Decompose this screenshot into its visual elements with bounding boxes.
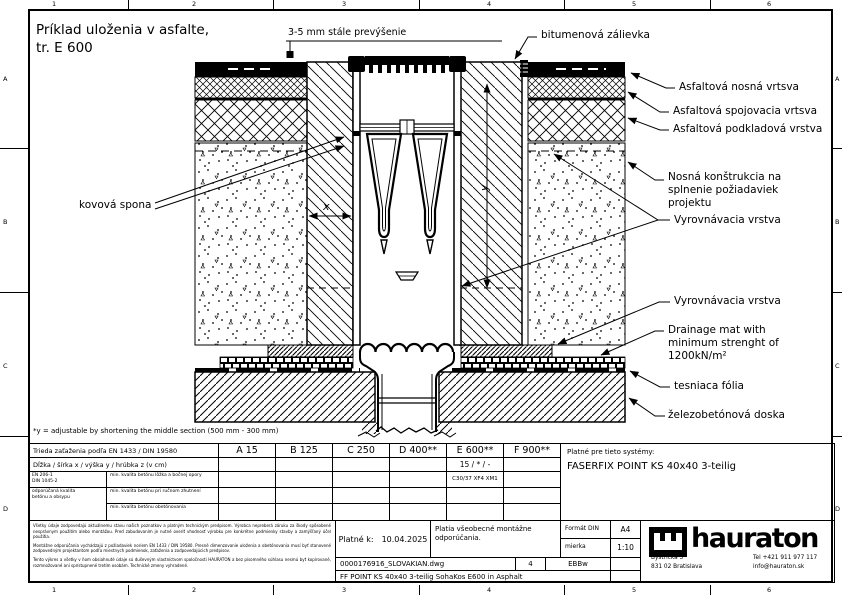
dims-e600: 15 / * / - <box>446 457 504 472</box>
scale-label: mierka <box>560 538 611 558</box>
drawing-file: 0000176916_SLOVAKIAN.dwg <box>335 557 516 571</box>
row-class-label: Trieda zaťaženia podľa EN 1433 / DIN 195… <box>28 443 219 458</box>
cc-1-c <box>332 471 390 488</box>
label-asphalt-binder: Asfaltová spojovacia vrtsva <box>673 105 817 118</box>
dimension-y-label: y <box>478 184 491 191</box>
general-note-cell: Platia všeobecné montážne odporúčania. <box>430 520 561 558</box>
label-metal-clamp: kovová spona <box>79 199 151 212</box>
cc-1-a <box>218 471 276 488</box>
disclaimer-2: Montážne odporúčania vychádzajú z požiad… <box>33 543 331 554</box>
class-e600: E 600** <box>446 443 504 458</box>
page-title: Príklad uloženia v asfalte, tr. E 600 <box>36 22 209 57</box>
label-sealing-foil: tesniaca fólia <box>674 380 744 393</box>
class-f900: F 900** <box>503 443 561 458</box>
author-code: EBBw <box>545 557 611 571</box>
asphalt-layers-left <box>195 62 307 345</box>
label-asphalt-base: Asfaltová podkladová vrstva <box>673 123 822 136</box>
cc-3-d <box>389 503 447 521</box>
label-bearing-structure: Nosná konštrukcia na splnenie požiadavie… <box>668 171 781 209</box>
label-drainage-mat: Drainage mat with minimum strenght of 12… <box>668 324 779 362</box>
brand-block: hauraton Bystrická 3 831 02 Bratislava T… <box>640 520 835 583</box>
systems-block: Platné pre tieto systémy: FASERFIX POINT… <box>560 443 835 521</box>
cc-2-d <box>389 487 447 504</box>
scale-value: 1:10 <box>610 538 641 558</box>
cc-3-f <box>503 503 561 521</box>
disclaimer-3: Tento výkres a všetky v ňom obsiahnuté ú… <box>33 557 331 568</box>
class-a15: A 15 <box>218 443 276 458</box>
empty-cell-1 <box>610 557 641 571</box>
disclaimer-block: Všetky údaje zodpovedajú aktuálnemu stav… <box>28 520 336 583</box>
cc-3-b <box>275 503 333 521</box>
drawing-name: FF POINT KS 40x40 3-teilig SohaKos E600 … <box>335 570 611 583</box>
systems-value: FASERFIX POINT KS 40x40 3-teilig <box>567 461 834 472</box>
class-c250: C 250 <box>332 443 390 458</box>
valid-label: Platné k: <box>339 535 374 544</box>
empty-cell-2 <box>610 570 641 583</box>
systems-label: Platné pre tieto systémy: <box>567 448 834 456</box>
concrete-row-3-label: min. kvalita betónu obetónovania <box>106 503 219 521</box>
label-bitumen-joint: bitumenová zálievka <box>541 29 650 42</box>
label-leveling-upper: Vyrovnávacia vrstva <box>674 214 781 227</box>
brand-address: Bystrická 3 831 02 Bratislava <box>651 554 702 572</box>
cc-2-b <box>275 487 333 504</box>
cc-1-b <box>275 471 333 488</box>
dims-f900 <box>503 457 561 472</box>
cc-3-c <box>332 503 390 521</box>
valid-date-cell: Platné k: 10.04.2025 <box>335 520 431 558</box>
concrete-row-1-label: min. kvalita betónu lôžka a bočnej opory <box>106 471 219 488</box>
dims-c250 <box>332 457 390 472</box>
dims-d400 <box>389 457 447 472</box>
label-surface-note: 3-5 mm stále prevýšenie <box>288 27 406 39</box>
label-concrete-slab: železobetónová doska <box>668 409 785 422</box>
channel-body <box>348 56 466 345</box>
drawing-sheet: 1 2 3 4 5 6 1 2 3 4 5 6 A B C D A B C D <box>0 0 842 595</box>
cc-2-f <box>503 487 561 504</box>
cc-1-f <box>503 471 561 488</box>
class-d400: D 400** <box>389 443 447 458</box>
cc-3-a <box>218 503 276 521</box>
label-asphalt-wearing: Asfaltová nosná vrtsva <box>679 81 799 94</box>
format-label: Formát DIN <box>560 520 611 539</box>
brand-wordmark: hauraton <box>691 525 818 552</box>
norm-ref: EN 206-1 DIN 1045-2 <box>28 471 107 488</box>
valid-date: 10.04.2025 <box>382 535 428 544</box>
brand-contact: Tel +421 911 977 117 info@hauraton.sk <box>753 554 817 572</box>
norm-note: odporúčaná kvalita betónu a obsypu <box>28 487 107 521</box>
row-dims-label: Dĺžka / šírka x / výška y / hrúbka z (v … <box>28 457 219 472</box>
disclaimer-1: Všetky údaje zodpovedajú aktuálnemu stav… <box>33 523 331 540</box>
concrete-e600: C30/37 XF4 XM1 <box>446 471 504 488</box>
dimension-x-label: x <box>323 200 330 213</box>
class-b125: B 125 <box>275 443 333 458</box>
sheet-number: 4 <box>515 557 546 571</box>
concrete-row-2-label: min. kvalita betónu pri ručnom zhutnení <box>106 487 219 504</box>
cc-3-e <box>446 503 504 521</box>
cc-2-c <box>332 487 390 504</box>
dims-b125 <box>275 457 333 472</box>
cc-2-a <box>218 487 276 504</box>
dims-a15 <box>218 457 276 472</box>
cc-2-e <box>446 487 504 504</box>
cc-1-d <box>389 471 447 488</box>
asphalt-layers-right <box>520 60 625 345</box>
footnote: *y = adjustable by shortening the middle… <box>33 427 278 436</box>
format-value: A4 <box>610 520 641 539</box>
label-leveling-lower: Vyrovnávacia vrstva <box>674 295 781 308</box>
